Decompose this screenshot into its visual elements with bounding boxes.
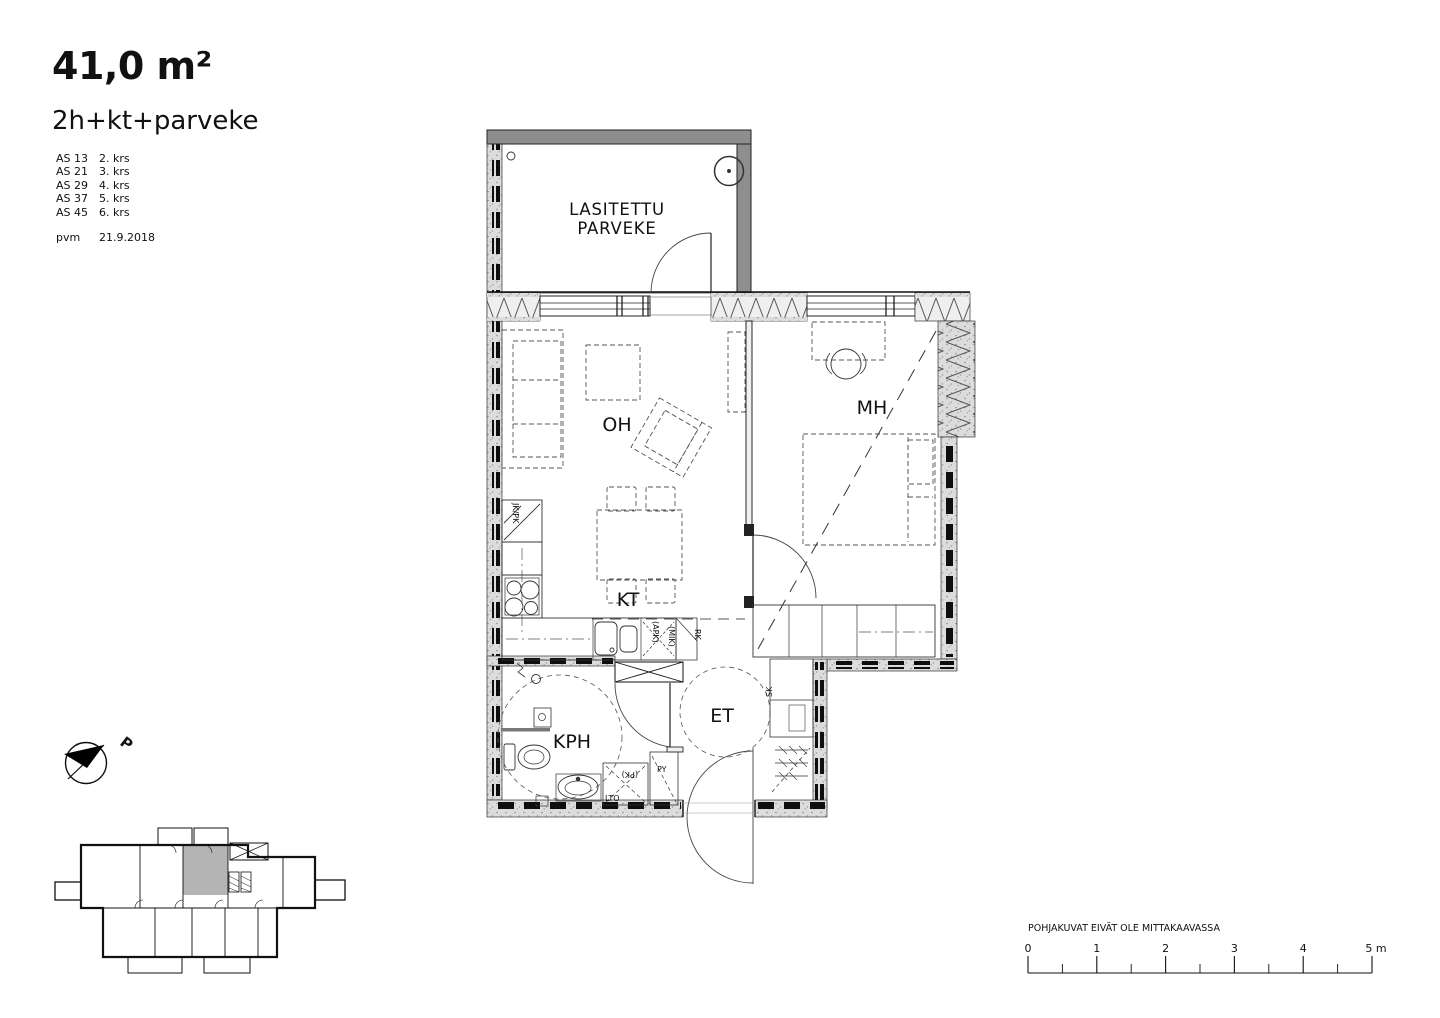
room-label-kph: KPH [553, 731, 591, 753]
chair [646, 487, 675, 511]
disclaimer: POHJAKUVAT EIVÄT OLE MITTAKAAVASSA [1028, 923, 1221, 934]
unit-id: AS 21 [56, 165, 99, 178]
scale-tick-label: 2 [1162, 942, 1169, 955]
label-lto: LTO [605, 794, 620, 803]
label-py: PY [657, 765, 667, 774]
label-jkpk: JK/PK [511, 502, 520, 524]
apartment-row: AS 29 4. krs [56, 179, 130, 192]
floor-plan: LASITETTU PARVEKE OH MH KT KPH ET JK/PK … [455, 105, 1015, 920]
scale-tick-label: 5 m [1365, 942, 1386, 955]
chair [607, 487, 636, 511]
balcony-label: LASITETTU [569, 200, 665, 219]
room-label-et: ET [710, 705, 734, 727]
towel-rail [501, 728, 550, 732]
scale-tick-label: 4 [1300, 942, 1307, 955]
bathroom-door [615, 683, 670, 747]
scale-tick-label: 0 [1025, 942, 1032, 955]
balcony-label: PARVEKE [577, 219, 656, 238]
label-pk: (PK) [622, 770, 638, 779]
apartment-row: AS 37 5. krs [56, 192, 130, 205]
appliance-labels: JK/PK (APK) (MIK) RK SK (PK) PY LTO [511, 502, 774, 803]
furniture-dashed [498, 322, 935, 799]
entry-door [687, 751, 753, 883]
unit-floor: 2. krs [99, 152, 130, 165]
apartment-list: AS 13 2. krs AS 21 3. krs AS 29 4. krs A… [56, 152, 130, 219]
room-label-kt: KT [617, 589, 640, 611]
room-label-mh: MH [857, 397, 888, 419]
floorplan-page: { "header": { "area": "41,0 m²", "type":… [0, 0, 1440, 1018]
north-label: P [117, 733, 137, 754]
unit-floor: 3. krs [99, 165, 130, 178]
scale-tick-label: 3 [1231, 942, 1238, 955]
guide-lines [506, 331, 936, 649]
unit-floor: 6. krs [99, 206, 130, 219]
scale-tick-label: 1 [1093, 942, 1100, 955]
chair [646, 579, 675, 603]
unit-id: AS 37 [56, 192, 99, 205]
apartment-row: AS 13 2. krs [56, 152, 130, 165]
armchair [631, 398, 711, 477]
compass: P [48, 713, 143, 798]
unit-id: AS 13 [56, 152, 99, 165]
room-label-oh: OH [602, 414, 631, 436]
pvm-label: pvm [56, 231, 99, 244]
unit-floor: 4. krs [99, 179, 130, 192]
doors [615, 233, 816, 884]
pvm-date: 21.9.2018 [99, 231, 155, 244]
area-title: 41,0 m² [52, 44, 212, 88]
drain [507, 152, 515, 160]
shelf [728, 332, 745, 412]
highlighted-unit [183, 846, 228, 895]
unit-id: AS 45 [56, 206, 99, 219]
label-rk: RK [693, 629, 702, 641]
north-arrow [64, 745, 104, 768]
label-sk: SK [765, 686, 774, 697]
desk [812, 322, 885, 360]
apartment-row: AS 21 3. krs [56, 165, 130, 178]
label-mik: (MIK) [667, 626, 676, 647]
key-plan [50, 818, 360, 980]
coffee-table [586, 345, 640, 400]
unit-id: AS 29 [56, 179, 99, 192]
unit-floor: 5. krs [99, 192, 130, 205]
balcony-door [651, 233, 711, 293]
bedroom-door [753, 535, 816, 598]
sofa [502, 330, 563, 468]
label-apk: (APK) [651, 621, 660, 643]
apartment-type: 2h+kt+parveke [52, 106, 258, 136]
apartment-row: AS 45 6. krs [56, 206, 130, 219]
date-row: pvm 21.9.2018 [56, 231, 155, 244]
dining-table [597, 510, 682, 580]
scale-bar: POHJAKUVAT EIVÄT OLE MITTAKAAVASSA 0 1 2… [1015, 915, 1395, 990]
